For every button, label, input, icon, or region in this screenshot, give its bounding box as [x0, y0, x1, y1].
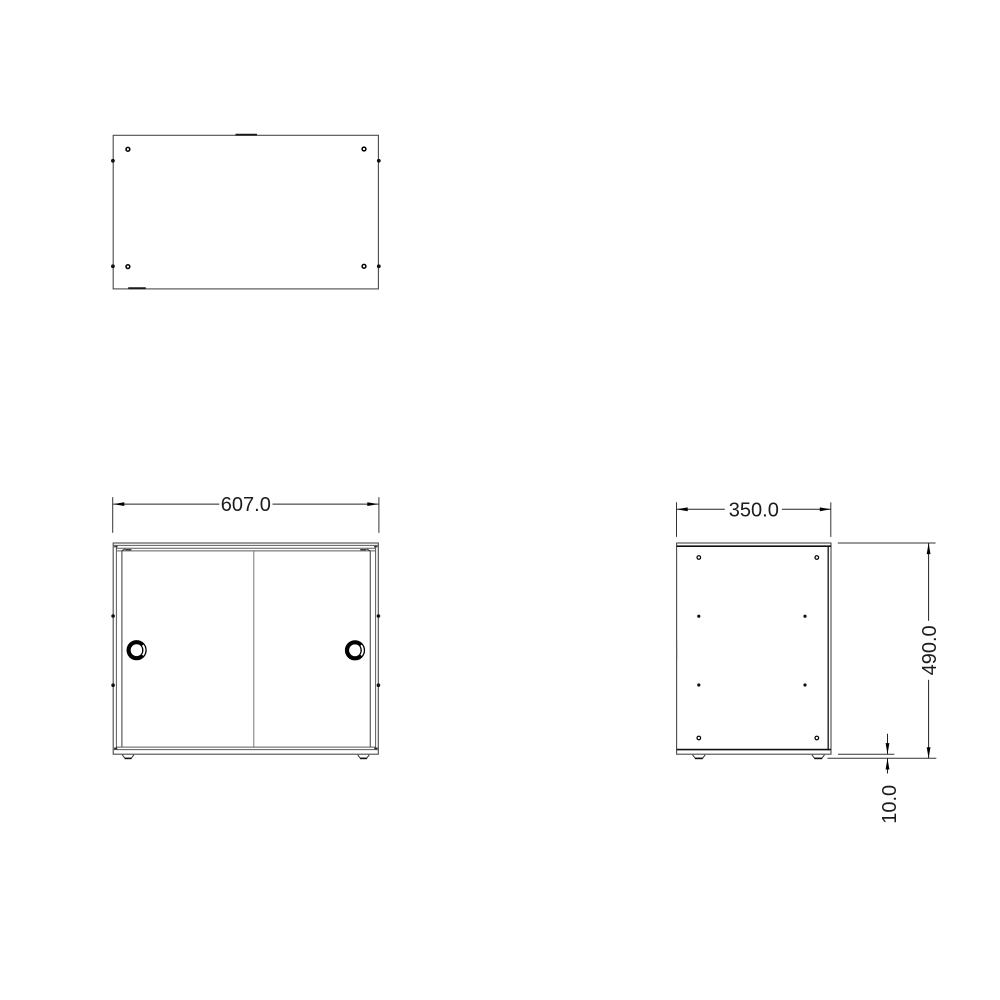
svg-text:607.0: 607.0	[221, 494, 271, 516]
svg-text:350.0: 350.0	[729, 499, 779, 521]
svg-text:490.0: 490.0	[919, 625, 941, 675]
svg-text:10.0: 10.0	[879, 785, 901, 824]
